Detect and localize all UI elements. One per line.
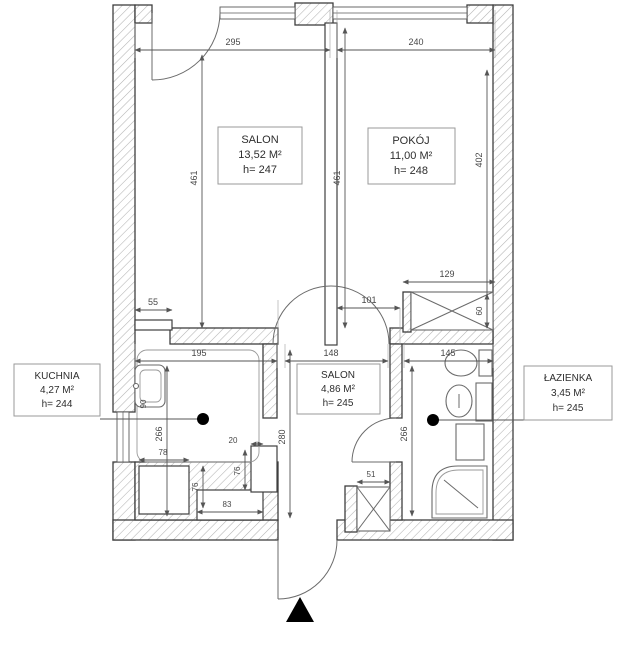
entrance-marker-icon [286,597,314,622]
shaft-icon [357,487,390,531]
wall-wardrobe-stub [403,292,411,332]
wall-salon-bottom [170,328,278,344]
dim-sink-width: 90 [139,399,148,408]
windows [117,7,467,462]
floor-plan-page: 295 240 461 461 402 55 195 148 145 101 1… [0,0,635,648]
wall-bottom-left [113,520,278,540]
room-labels: SALON 13,52 M² h= 247 POKÓJ 11,00 M² h= … [14,127,612,426]
bathroom-cabinet [476,383,492,421]
wall-top-pier-left [135,5,152,23]
label-pokoj: POKÓJ 11,00 M² h= 248 [368,128,455,184]
dim-wardrobe-width: 129 [439,269,454,279]
wall-left-upper [113,5,135,412]
dim-hall-depth: 280 [277,429,287,444]
bathroom-door-arc [352,418,396,462]
lazienka-name: ŁAZIENKA [544,373,593,384]
dim-kuchnia-depth: 266 [154,426,164,441]
kuchnia-leader-dot [197,413,209,425]
dimensions: 295 240 461 461 402 55 195 148 145 101 1… [135,28,495,518]
toilet-tank [479,350,492,376]
wall-top-pier-right [467,5,493,23]
dim-pokoj-height: 402 [474,152,484,167]
dim-hall-width: 148 [323,348,338,358]
wall-bath-hall-lower [390,462,402,520]
dim-kuchnia-width: 195 [191,348,206,358]
label-salon: SALON 13,52 M² h= 247 [218,127,302,184]
niche-recess [139,466,189,514]
shower-icon [432,466,487,518]
wall-stub-55 [135,320,172,330]
salon-area: 13,52 M² [238,149,282,161]
salon-name: SALON [241,134,278,146]
wall-kitchen-hall [263,344,277,418]
pokoj-name: POKÓJ [392,134,429,147]
dim-lazienka-depth: 266 [399,426,409,441]
dim-niche-width: 78 [159,448,168,457]
kuchnia-name: KUCHNIA [34,371,79,382]
salon-height: h= 247 [243,164,277,176]
dim-wall-stub: 55 [148,297,158,307]
dim-niche-inner: 83 [223,500,232,509]
wall-right [493,5,513,540]
chimney-block [251,446,277,492]
hall-area: 4,86 M² [321,384,356,395]
lazienka-area: 3,45 M² [551,388,586,399]
dim-chimney-width: 20 [229,436,238,445]
pokoj-area: 11,00 M² [390,150,433,162]
dim-lazienka-width: 145 [440,348,455,358]
dim-shaft-width: 51 [367,470,376,479]
balcony-door-arc [152,13,220,80]
washing-machine-icon [456,424,484,460]
partitions [135,23,337,520]
lazienka-leader-dot [427,414,439,426]
hall-name: SALON [321,370,355,381]
dim-divider-height: 461 [332,170,342,185]
wall-top-pier-mid [295,3,333,25]
pokoj-height: h= 248 [394,165,428,177]
entrance-door-arc [278,540,337,599]
wall-shaft-stub [345,486,357,532]
hall-height: h= 245 [323,398,354,409]
kuchnia-height: h= 244 [42,399,73,410]
dim-niche-depth: 76 [191,482,200,491]
label-hall: SALON 4,86 M² h= 245 [297,364,380,414]
dim-salon-width: 295 [225,37,240,47]
kitchen-sink-tap [134,384,139,389]
wall-bath-hall-upper [390,344,402,418]
kuchnia-area: 4,27 M² [40,385,75,396]
dim-chimney-depth: 76 [233,466,242,475]
dim-wardrobe-depth: 60 [475,306,484,315]
lazienka-height: h= 245 [553,403,584,414]
floor-plan: 295 240 461 461 402 55 195 148 145 101 1… [0,0,635,648]
dim-salon-height: 461 [189,170,199,185]
label-kuchnia: KUCHNIA 4,27 M² h= 244 [14,364,209,425]
dim-pokoj-width: 240 [408,37,423,47]
dim-pokoj-opening: 101 [361,295,376,305]
